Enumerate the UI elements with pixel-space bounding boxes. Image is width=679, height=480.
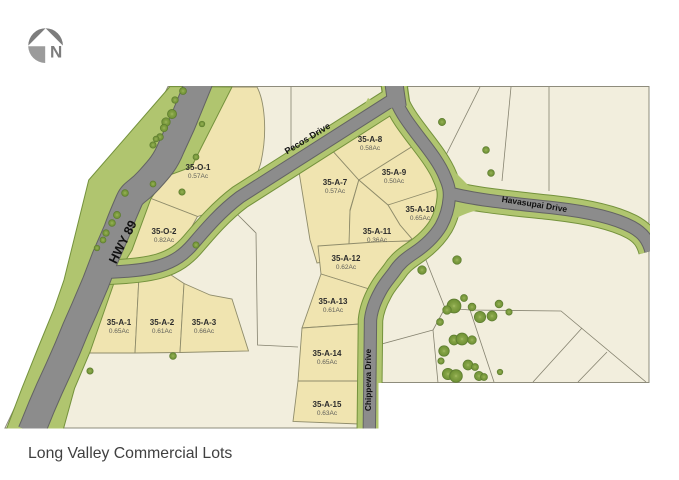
svg-text:0.62Ac: 0.62Ac xyxy=(336,264,357,271)
svg-text:35-A-14: 35-A-14 xyxy=(313,349,342,358)
svg-text:0.65Ac: 0.65Ac xyxy=(317,359,338,366)
svg-text:0.66Ac: 0.66Ac xyxy=(194,328,215,335)
svg-text:N: N xyxy=(50,43,62,62)
svg-text:35-A-3: 35-A-3 xyxy=(192,318,217,327)
svg-text:35-A-1: 35-A-1 xyxy=(107,318,132,327)
svg-text:35-O-2: 35-O-2 xyxy=(152,227,177,236)
svg-text:35-A-8: 35-A-8 xyxy=(358,135,383,144)
svg-text:35-A-13: 35-A-13 xyxy=(319,297,348,306)
svg-text:0.58Ac: 0.58Ac xyxy=(360,145,381,152)
svg-text:0.82Ac: 0.82Ac xyxy=(154,237,175,244)
svg-text:35-A-15: 35-A-15 xyxy=(313,400,342,409)
svg-text:35-A-2: 35-A-2 xyxy=(150,318,175,327)
svg-text:35-A-11: 35-A-11 xyxy=(363,227,392,236)
svg-text:0.57Ac: 0.57Ac xyxy=(325,188,346,195)
svg-text:35-A-9: 35-A-9 xyxy=(382,168,407,177)
svg-text:Long Valley Commercial Lots: Long Valley Commercial Lots xyxy=(28,445,232,462)
svg-text:0.57Ac: 0.57Ac xyxy=(188,173,209,180)
svg-text:0.36Ac: 0.36Ac xyxy=(367,237,388,244)
svg-text:35-O-1: 35-O-1 xyxy=(186,163,211,172)
svg-text:0.65Ac: 0.65Ac xyxy=(410,215,431,222)
svg-text:35-A-12: 35-A-12 xyxy=(332,254,361,263)
svg-text:0.61Ac: 0.61Ac xyxy=(323,307,344,314)
svg-text:0.50Ac: 0.50Ac xyxy=(384,178,405,185)
svg-text:35-A-10: 35-A-10 xyxy=(406,205,435,214)
svg-text:0.61Ac: 0.61Ac xyxy=(152,328,173,335)
svg-text:0.65Ac: 0.65Ac xyxy=(109,328,130,335)
svg-text:Chippewa Drive: Chippewa Drive xyxy=(363,348,373,411)
svg-text:0.63Ac: 0.63Ac xyxy=(317,410,338,417)
svg-text:35-A-7: 35-A-7 xyxy=(323,178,348,187)
